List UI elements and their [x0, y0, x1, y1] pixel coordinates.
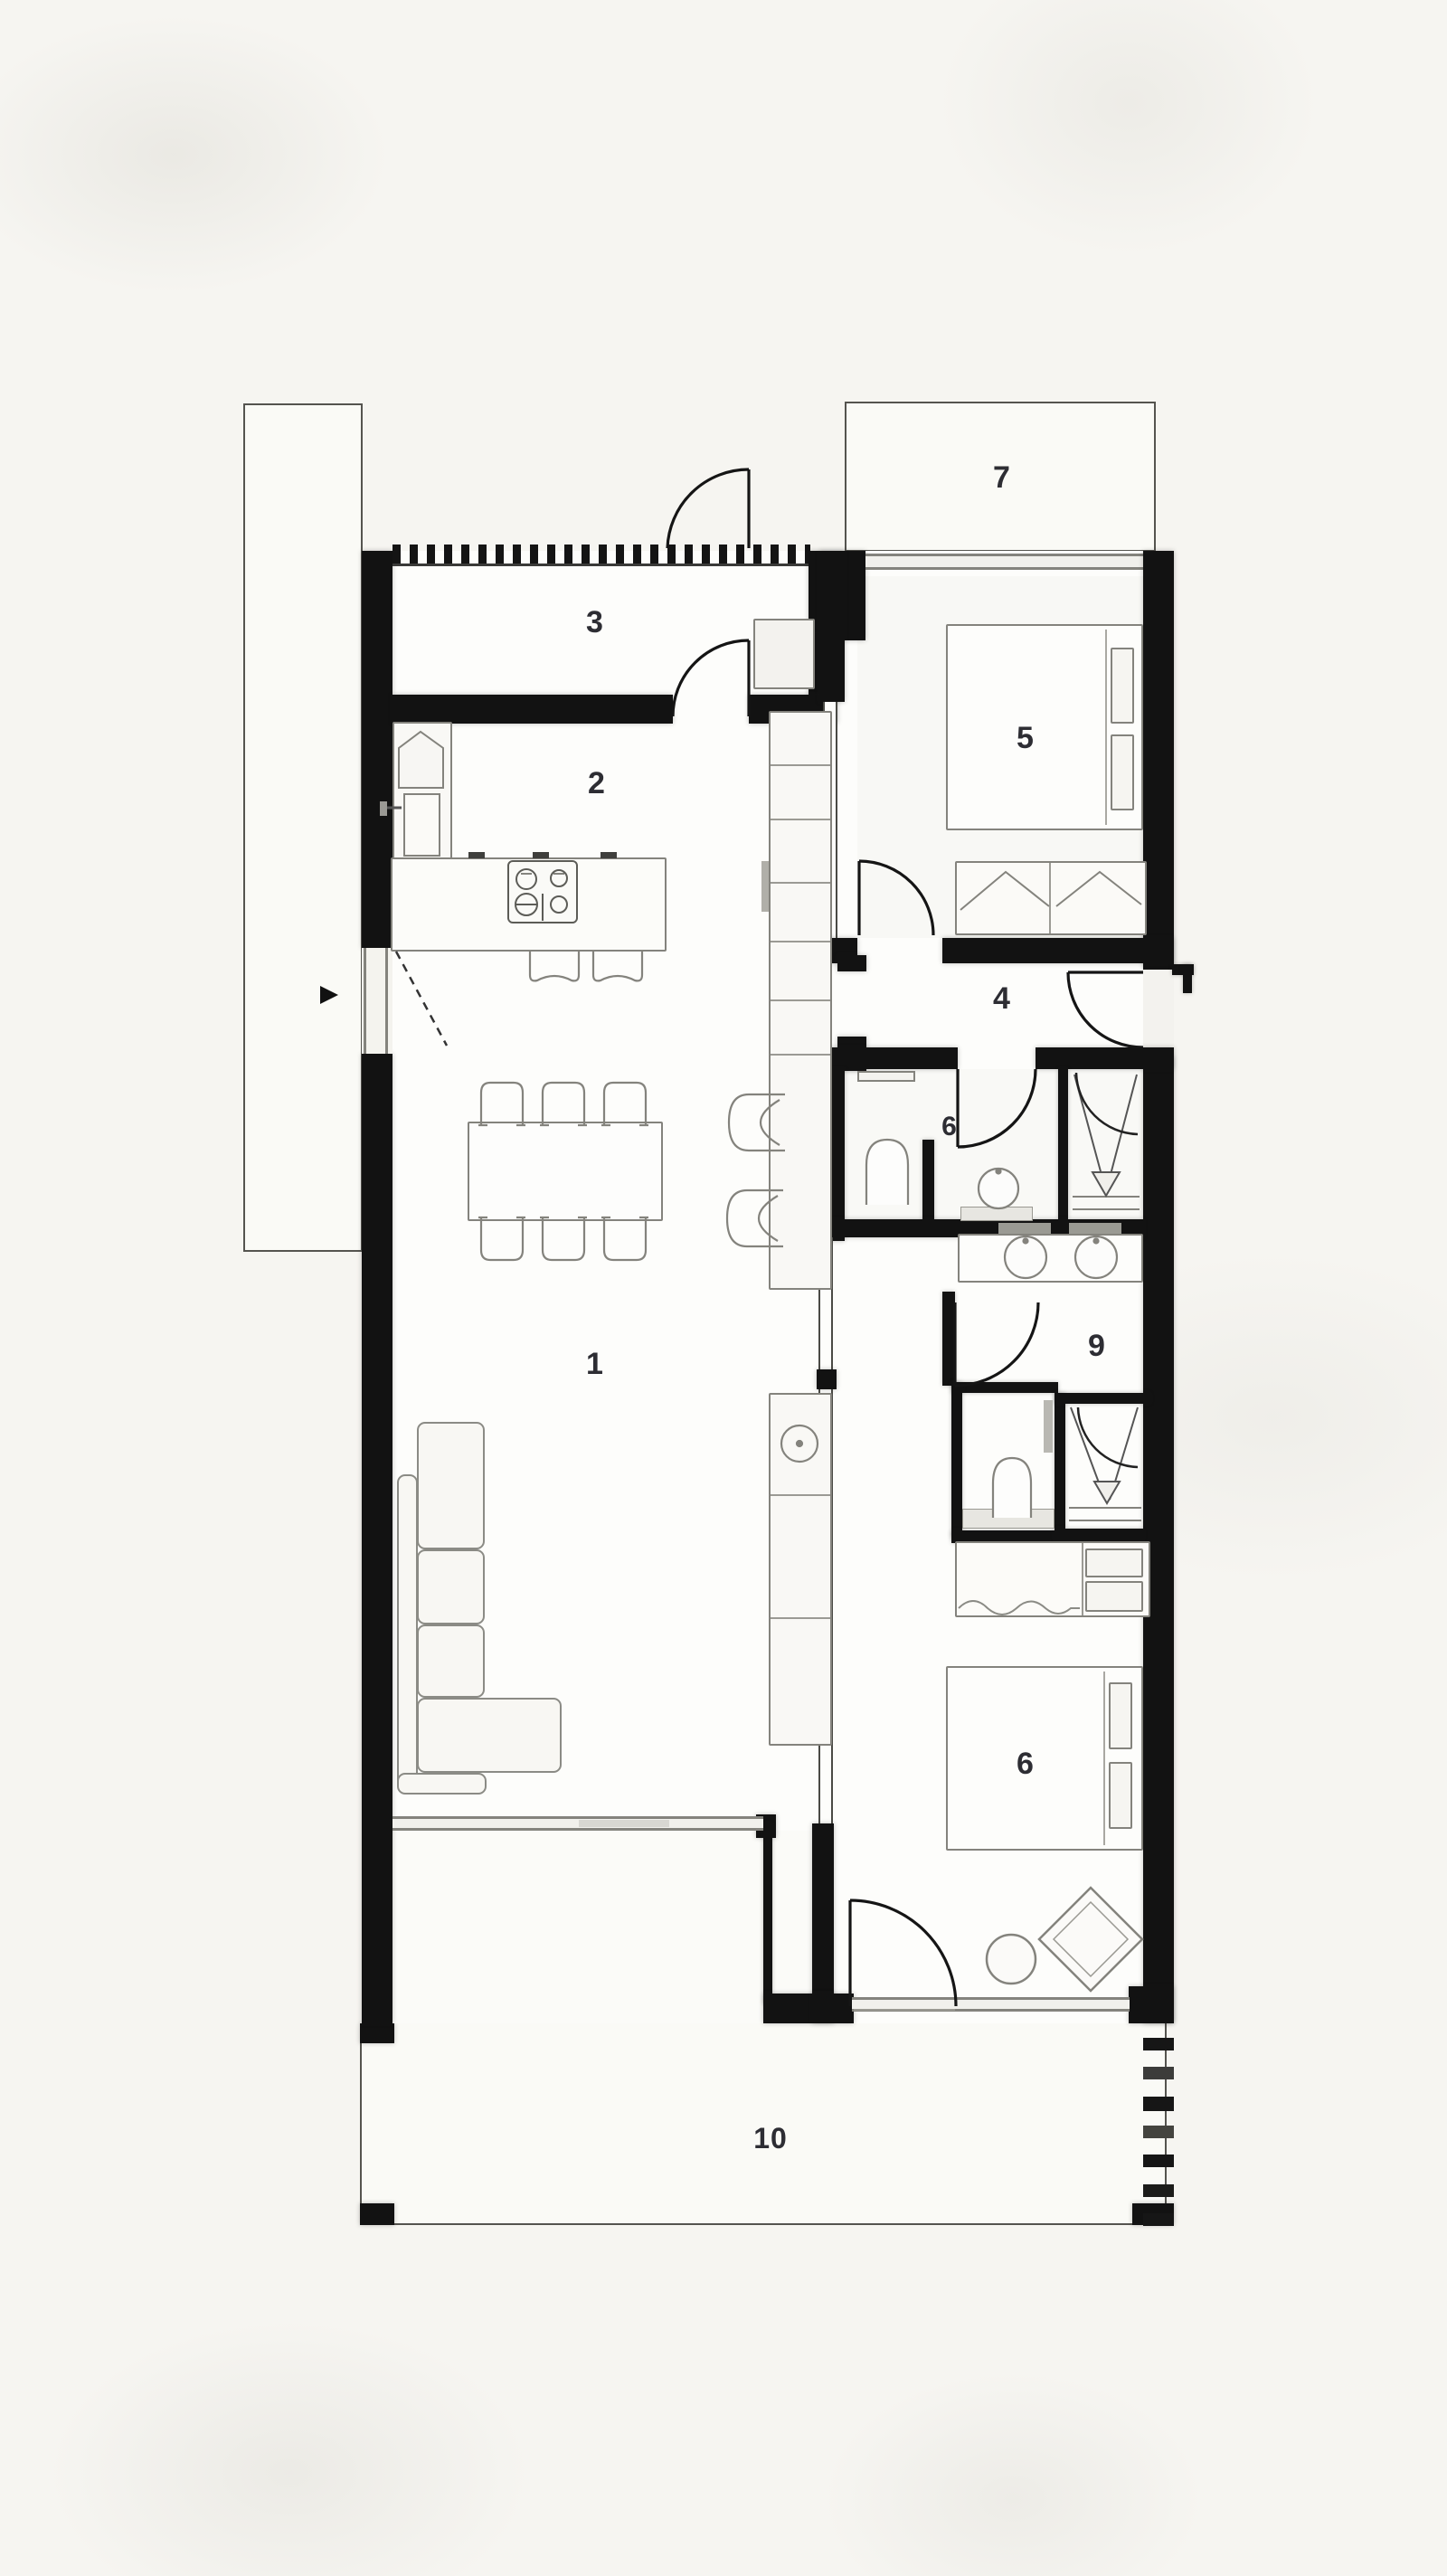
room-label-bathroom: 6: [941, 1113, 958, 1141]
floor-plan-page: { "plan": { "title": "apartment-floor-pl…: [0, 0, 1447, 2576]
washbasin: [1005, 1236, 1117, 1278]
door-swing-room3: [673, 640, 749, 716]
washbasin: [979, 1169, 1018, 1208]
door-swing-bathroom: [958, 1069, 1036, 1147]
desk-armchair: [727, 1094, 785, 1246]
hob-4-burner: [508, 861, 577, 923]
room-label-terrace: 10: [753, 2124, 788, 2153]
room-label-balcony: 7: [993, 462, 1011, 493]
room-label-dressing: 9: [1088, 1331, 1106, 1361]
opening-dash: [396, 952, 447, 1046]
room-label-kitchen: 2: [588, 768, 606, 799]
door-swing-entry: [1068, 972, 1143, 1047]
room-label-bedroom1: 5: [1017, 723, 1035, 753]
kitchen-sink: [380, 732, 443, 856]
diamond-lounge-chair: [1039, 1888, 1142, 1991]
room-label-storage: 3: [586, 607, 604, 638]
shower: [1071, 1407, 1138, 1503]
toilet: [993, 1458, 1031, 1518]
room-label-hallway: 4: [993, 983, 1011, 1014]
washing-machine: [781, 1425, 818, 1462]
bar-stool: [530, 952, 642, 980]
round-side-table: [987, 1935, 1036, 1984]
door-swing-exterior-top: [667, 469, 749, 548]
room-label-living: 1: [586, 1349, 604, 1379]
wardrobe-clothes-line: [959, 1601, 1080, 1615]
room-label-bedroom2: 6: [1017, 1748, 1035, 1779]
toilet: [866, 1140, 908, 1205]
door-swing-bedroom1: [859, 861, 933, 935]
door-swing-corridor: [955, 1302, 1038, 1386]
detail-layer: [0, 0, 1447, 2576]
door-swing-bedroom2: [850, 1900, 956, 2006]
entrance-arrow-icon: [320, 986, 338, 1004]
shower: [1074, 1073, 1138, 1196]
floor-plan-canvas: 1 2 3 4 5 6 7 9 6 10: [0, 0, 1447, 2576]
wardrobe-door-marks: [960, 872, 1141, 910]
dining-chair: [478, 1083, 648, 1260]
